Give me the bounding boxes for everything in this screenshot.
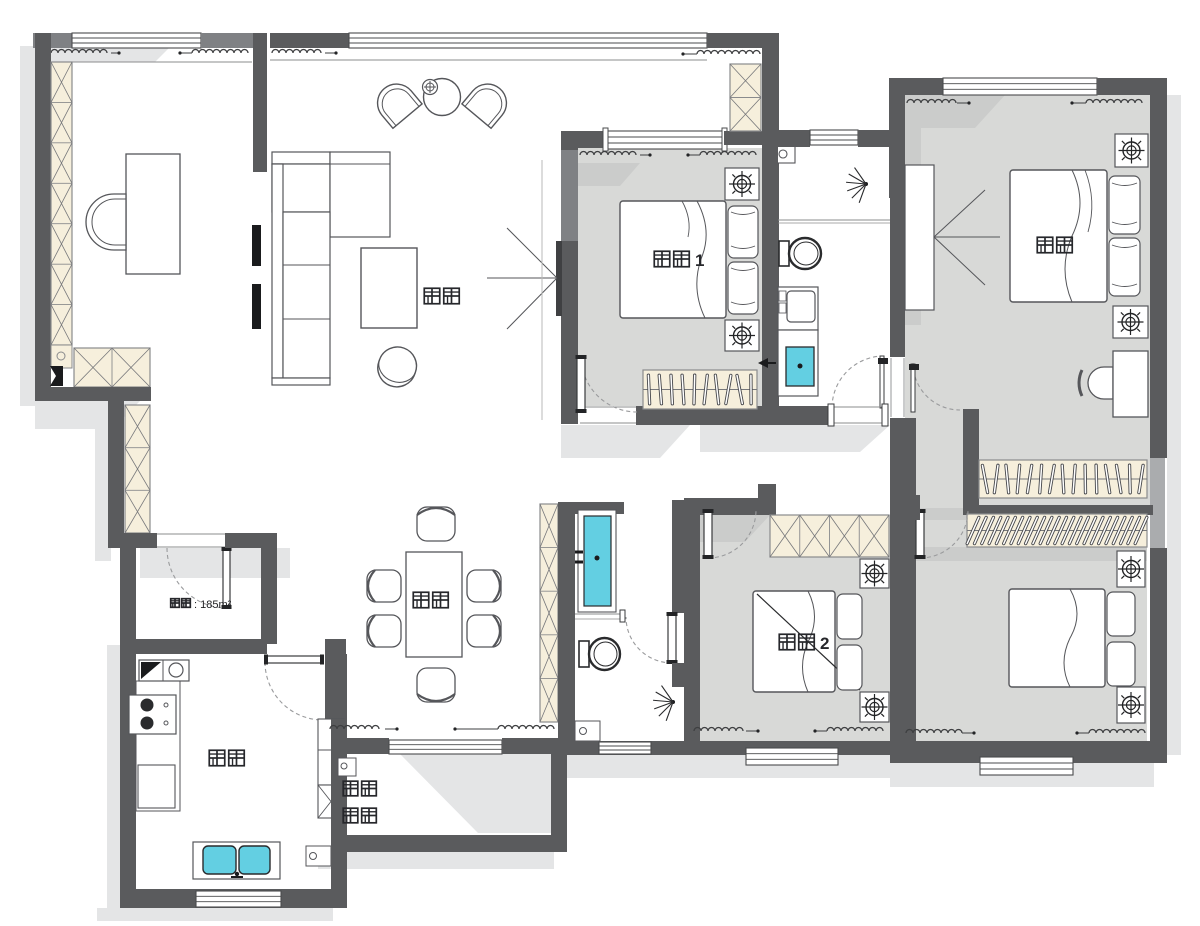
svg-text:2: 2 [820,634,829,653]
svg-text:1: 1 [695,251,704,270]
svg-text:: 185m²: : 185m² [194,599,232,611]
